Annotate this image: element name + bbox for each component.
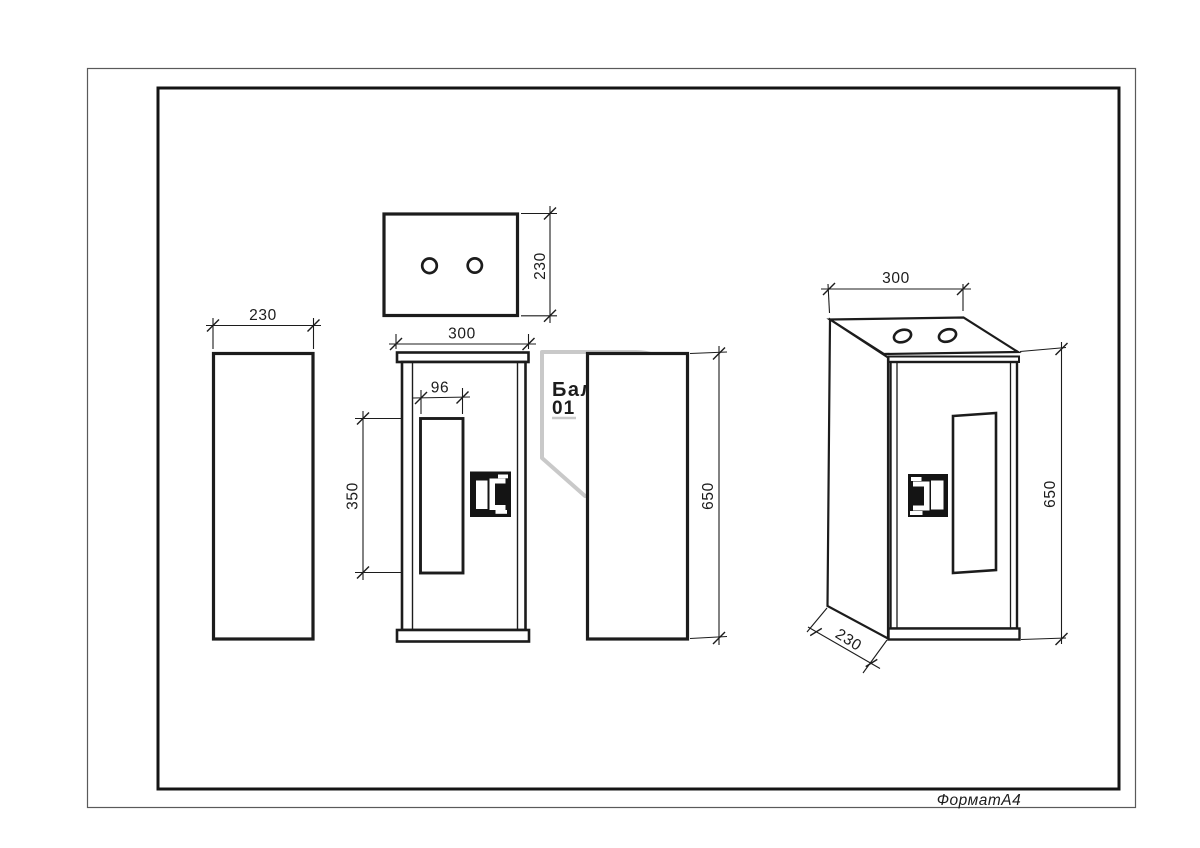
mounting-hole-left — [422, 259, 437, 274]
iso-width-dimension — [821, 284, 971, 313]
iso-bottom-cap — [889, 629, 1020, 640]
left-side-view: 230 — [206, 307, 321, 639]
format-label: ФорматА4 — [937, 792, 1022, 809]
door-handle-iso — [908, 474, 948, 517]
cabinet-bottom-cap — [397, 630, 529, 642]
isometric-view: 300 — [807, 270, 1068, 673]
right-side-view: 650 — [588, 346, 728, 645]
front-view: 300 96 350 — [345, 326, 537, 642]
cabinet-top-outline — [384, 214, 518, 316]
dim-label-iso-width: 300 — [882, 270, 910, 287]
door-handle-front — [470, 472, 511, 518]
top-view: 230 — [384, 206, 557, 323]
door-window — [421, 419, 464, 574]
cabinet-top-cap — [397, 353, 529, 363]
iso-door-window — [953, 413, 996, 573]
iso-side-face — [828, 320, 889, 639]
dim-label-left-width: 230 — [249, 307, 277, 324]
dim-label-front-width: 300 — [448, 326, 476, 343]
dim-label-top-depth: 230 — [532, 252, 549, 280]
technical-drawing: ФорматА4 Балтика 01 230 — [0, 0, 1200, 848]
cabinet-right-outline — [588, 354, 688, 640]
mounting-hole-right — [468, 258, 482, 272]
dim-label-right-height: 650 — [700, 482, 717, 510]
drawing-sheet: ФорматА4 Балтика 01 230 — [0, 0, 1200, 848]
watermark-number: 01 — [552, 398, 575, 419]
cabinet-left-outline — [214, 354, 314, 640]
dim-label-window-width: 96 — [431, 380, 449, 397]
dim-label-window-height: 350 — [345, 482, 362, 510]
dim-label-iso-height: 650 — [1042, 480, 1059, 508]
